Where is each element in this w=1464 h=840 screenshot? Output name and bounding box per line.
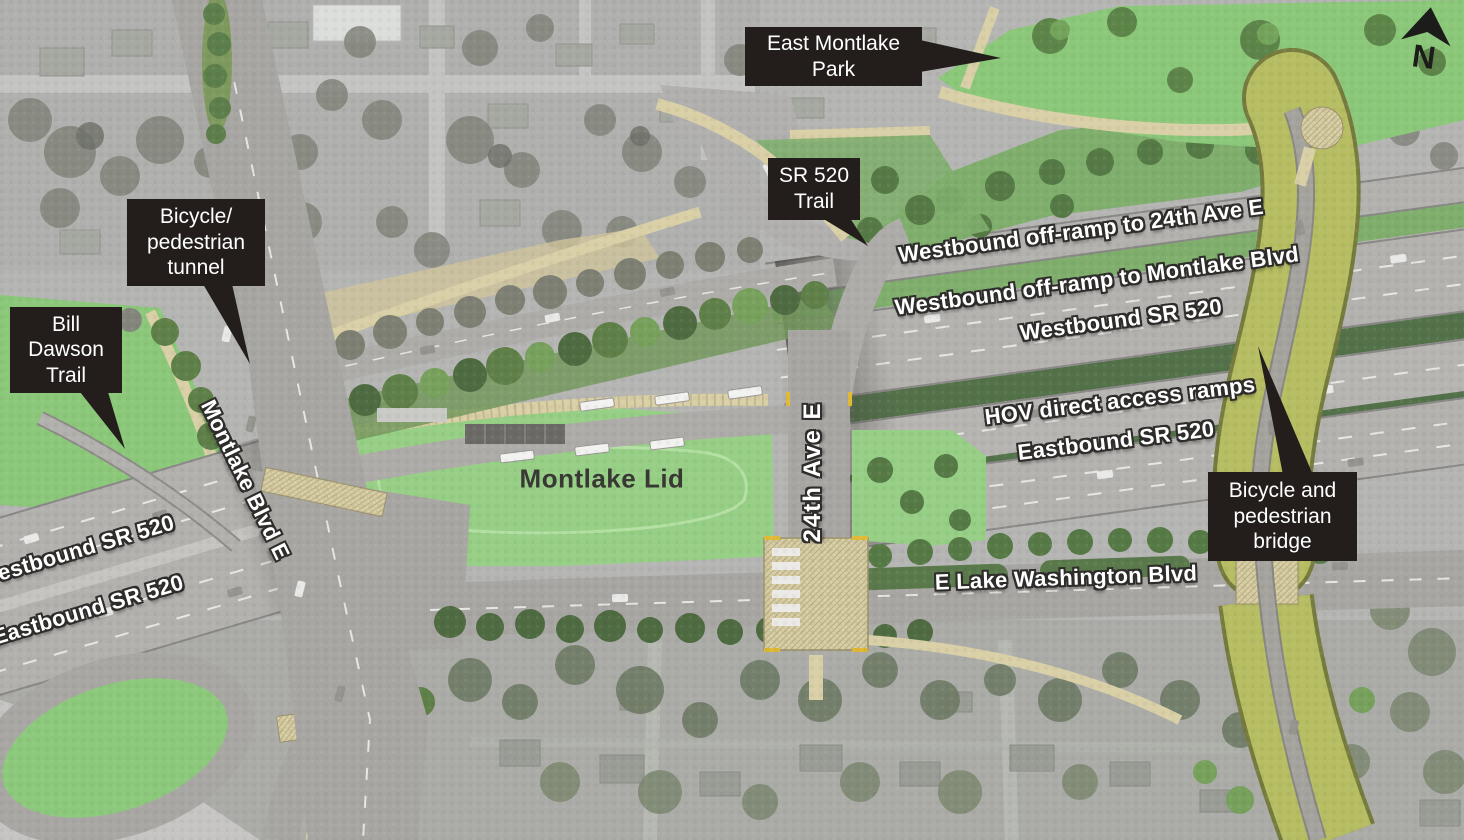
callout-bicycle-pedestrian-bridge: Bicycle and pedestrian bridge [1208,472,1357,561]
label-24th-ave-e: 24th Ave E [799,402,827,543]
callout-sr-520-trail: SR 520 Trail [768,158,860,220]
callout-bill-dawson-trail: Bill Dawson Trail [10,307,122,393]
callout-east-montlake-park: East Montlake Park [745,27,922,86]
label-montlake-lid: Montlake Lid [520,464,685,495]
callout-bicycle-pedestrian-tunnel: Bicycle/ pedestrian tunnel [127,199,265,286]
montlake-lid-plan-map: N East Montlake Park SR 520 Trail Bicycl… [0,0,1464,840]
north-arrow-label: N [1410,37,1438,76]
